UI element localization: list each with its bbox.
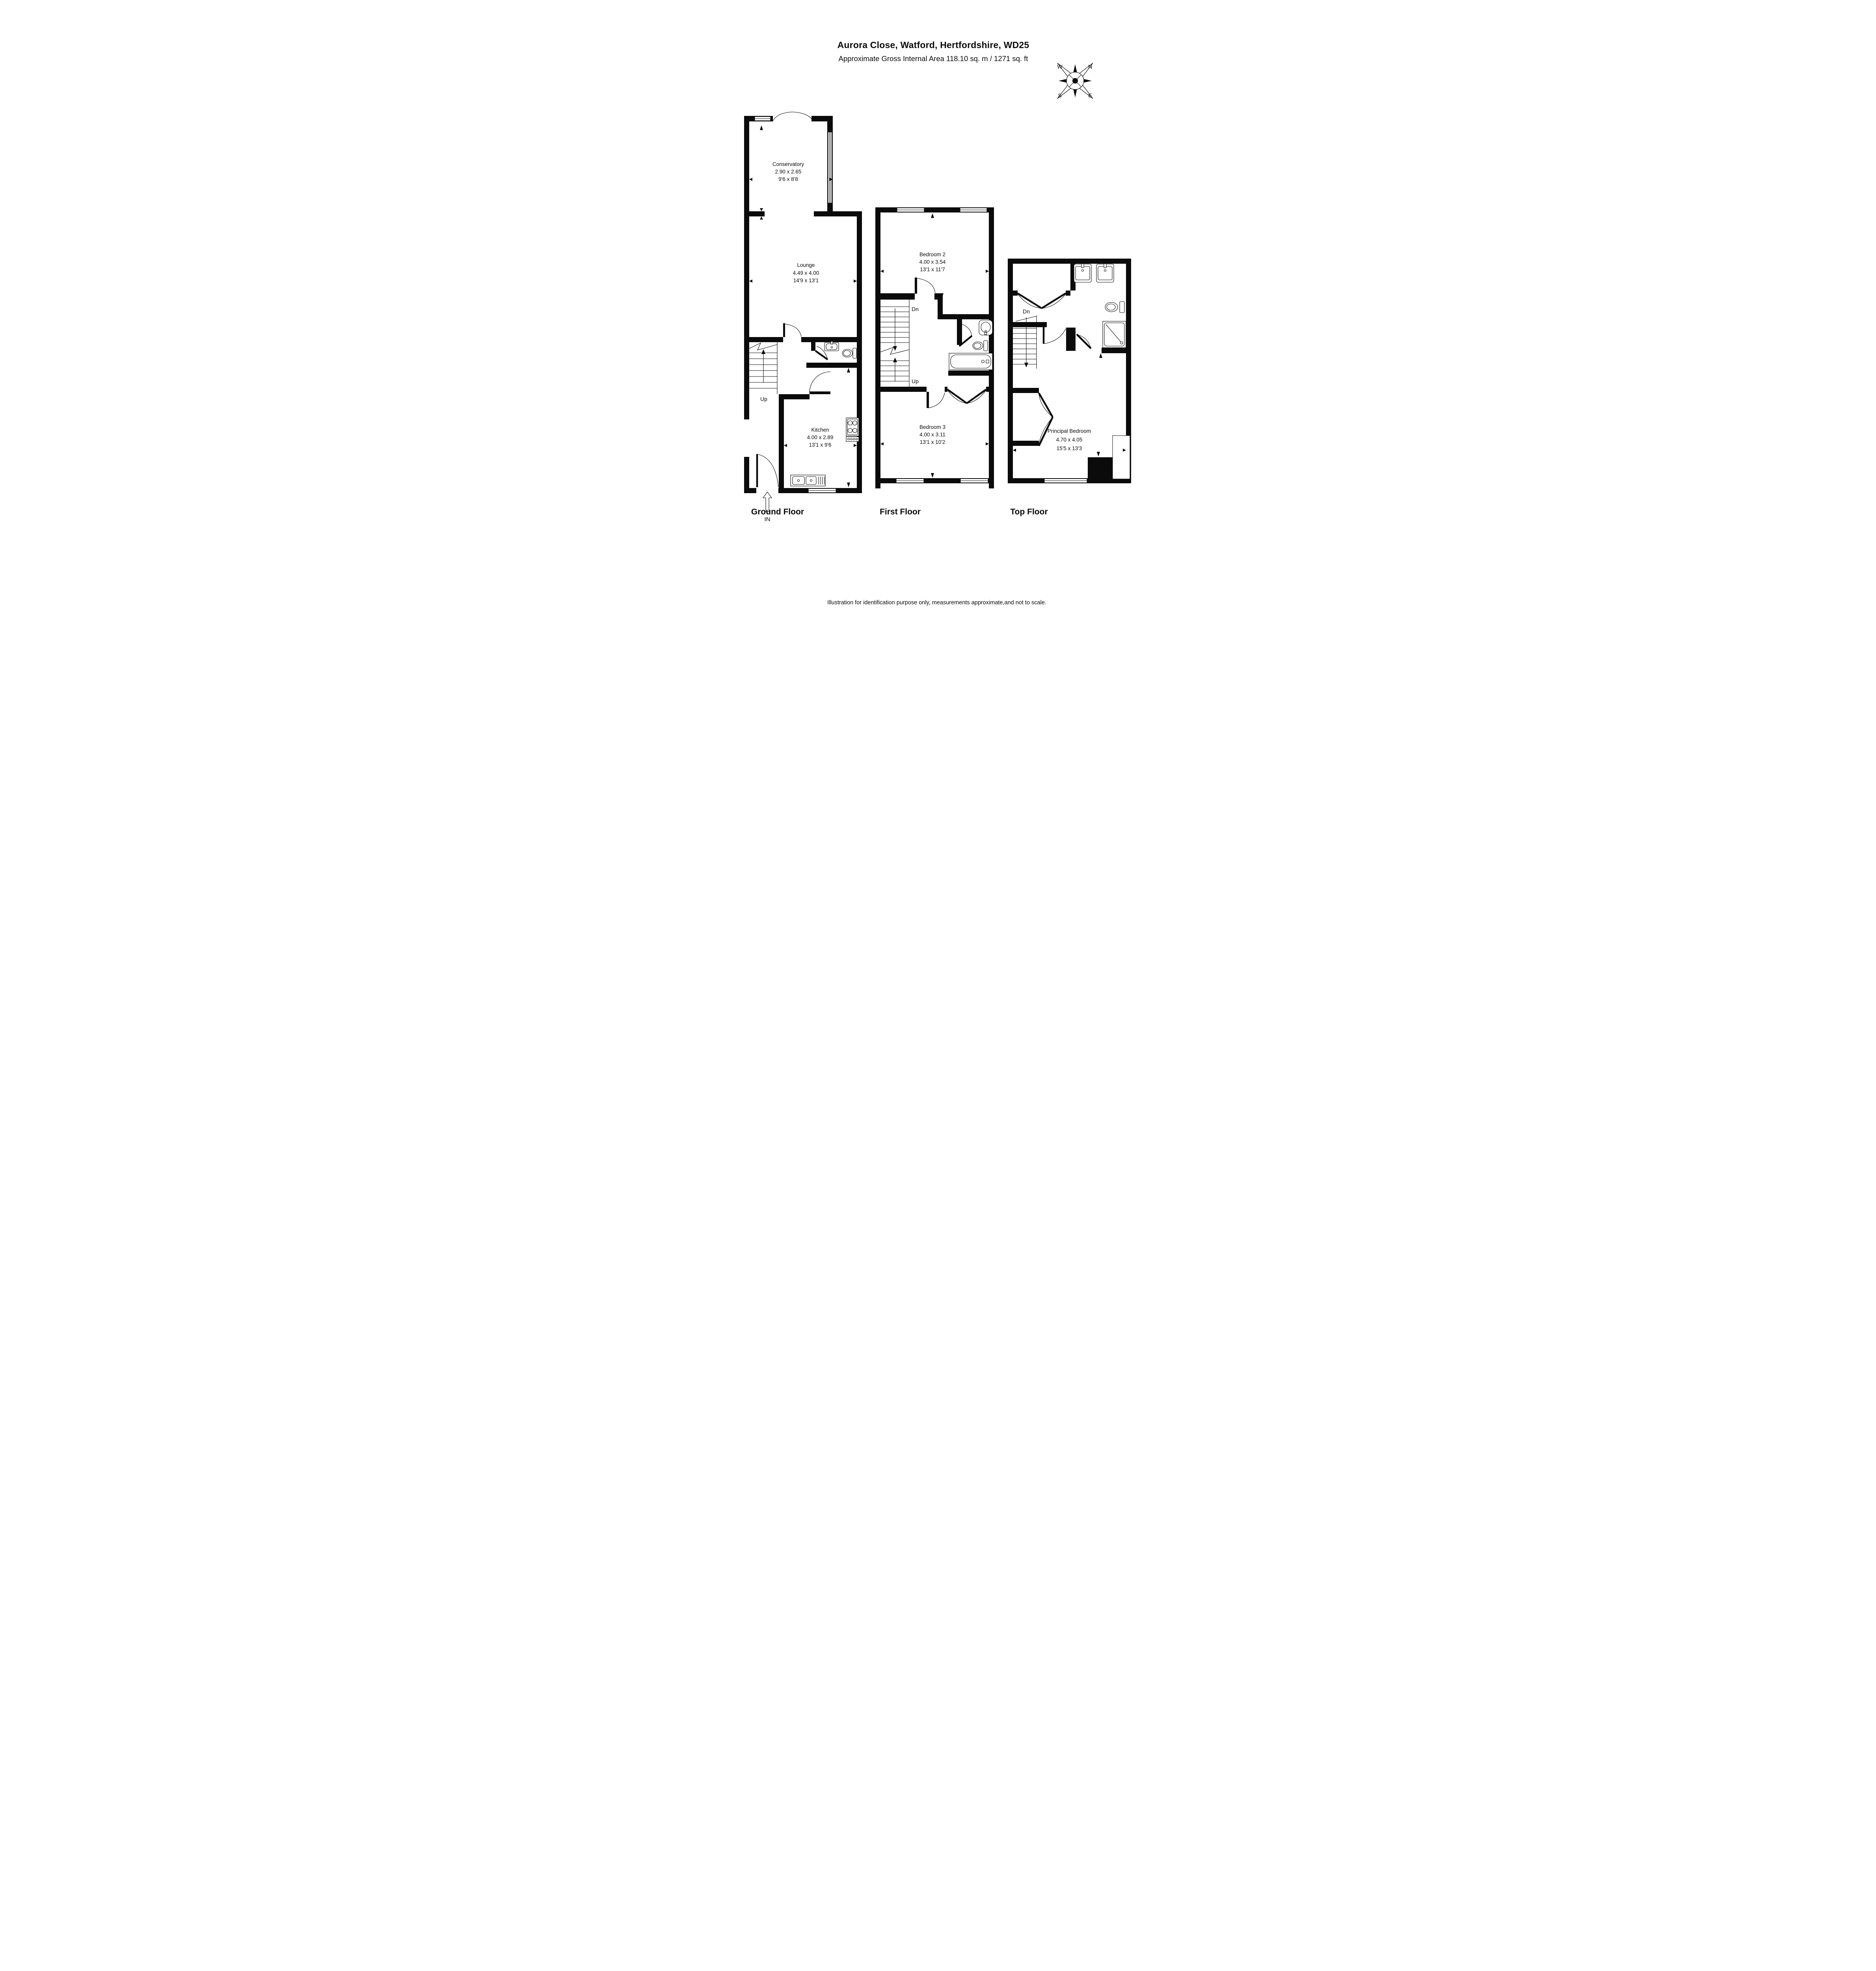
conservatory-dim-imperial: 9'6 x 8'8 bbox=[778, 176, 798, 182]
shower bbox=[1103, 321, 1126, 348]
compass-center-dot bbox=[1072, 78, 1078, 84]
principal-bedroom-dim-imperial: 15'5 x 13'3 bbox=[1057, 445, 1082, 451]
ground-floor-label: Ground Floor bbox=[751, 507, 804, 516]
compass-label-w: W bbox=[1057, 63, 1063, 70]
bedroom3-dim-metric: 4.00 x 3.11 bbox=[919, 432, 945, 438]
conservatory-dim-metric: 2.90 x 2.65 bbox=[775, 169, 802, 175]
top-stairs-down-label: Dn bbox=[1023, 308, 1030, 315]
bathtub bbox=[949, 353, 992, 370]
first-floor-label: First Floor bbox=[880, 507, 921, 516]
lounge-dim-metric: 4.49 x 4.00 bbox=[793, 270, 819, 276]
conservatory-name: Conservatory bbox=[772, 161, 804, 167]
lounge-name: Lounge bbox=[797, 262, 815, 268]
bedroom3-dim-imperial: 13'1 x 10'2 bbox=[920, 439, 945, 445]
bedroom2-name: Bedroom 2 bbox=[919, 251, 945, 257]
compass-label-e: E bbox=[1088, 92, 1092, 99]
kitchen-hob bbox=[846, 418, 859, 442]
lounge-dim-imperial: 14'9 x 13'1 bbox=[793, 278, 819, 283]
compass-label-n: N bbox=[1088, 63, 1092, 70]
page-subtitle: Approximate Gross Internal Area 118.10 s… bbox=[839, 54, 1028, 63]
principal-bedroom-name: Principal Bedroom bbox=[1048, 428, 1091, 434]
first-stairs-up-label: Up bbox=[912, 378, 919, 384]
compass-label-s: S bbox=[1058, 92, 1061, 99]
bedroom3-name: Bedroom 3 bbox=[919, 424, 945, 430]
top-floor-label: Top Floor bbox=[1010, 507, 1048, 516]
compass-rose: N E S W bbox=[1057, 63, 1093, 99]
ensuite-toilet bbox=[1105, 302, 1124, 313]
ensuite-sink-left bbox=[1074, 264, 1091, 282]
bedroom2-dim-metric: 4.00 x 3.54 bbox=[919, 259, 946, 265]
ground-stairs-up-label: Up bbox=[760, 396, 767, 402]
ensuite-sink-right bbox=[1096, 264, 1114, 282]
floorplan-page: Aurora Close, Watford, Hertfordshire, WD… bbox=[717, 0, 1159, 625]
bedroom2-dim-imperial: 13'1 x 11'7 bbox=[920, 266, 945, 272]
floorplan-canvas: Aurora Close, Watford, Hertfordshire, WD… bbox=[717, 0, 1159, 625]
page-title: Aurora Close, Watford, Hertfordshire, WD… bbox=[837, 40, 1029, 50]
entrance-label: IN bbox=[765, 516, 770, 523]
first-stairs-down-label: Dn bbox=[912, 306, 919, 312]
principal-bedroom-dim-metric: 4.70 x 4.05 bbox=[1056, 437, 1083, 443]
kitchen-name: Kitchen bbox=[811, 427, 829, 433]
kitchen-sink bbox=[791, 475, 825, 486]
kitchen-dim-metric: 4.00 x 2.89 bbox=[807, 434, 834, 440]
wc-sink bbox=[824, 341, 839, 351]
kitchen-dim-imperial: 13'1 x 9'6 bbox=[809, 442, 832, 448]
bathroom-sink-first bbox=[979, 320, 992, 335]
disclaimer-text: Illustration for identification purpose … bbox=[827, 600, 1046, 606]
